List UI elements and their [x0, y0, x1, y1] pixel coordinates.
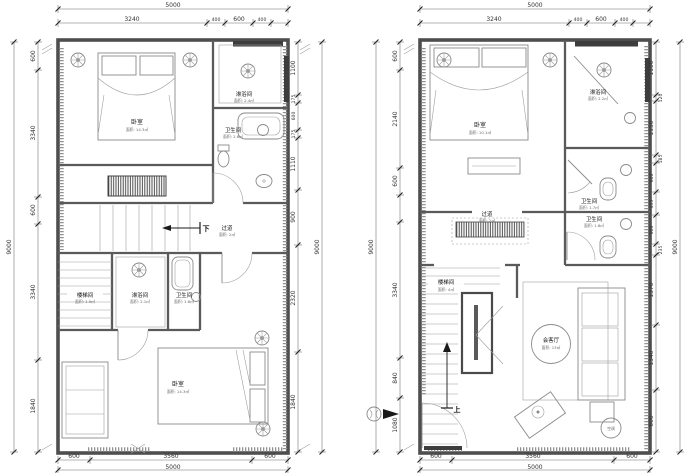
shower-head-icon [132, 263, 146, 277]
dim-label: 600 [233, 16, 245, 23]
ceiling-light-icon [183, 53, 197, 67]
room-area: 面积: 1.7㎡ [579, 205, 599, 210]
ceiling-light-icon [71, 53, 85, 67]
dim-label: 1100 [648, 60, 655, 75]
room-area: 面积: 2.4㎡ [234, 98, 254, 103]
room-label: 会客厅 [543, 336, 560, 344]
dim-label: 3340 [30, 284, 37, 299]
dim-label: 9000 [672, 239, 679, 254]
dim-label: 600 [392, 50, 399, 62]
up-label: 上 [454, 405, 461, 414]
dim-label: 9000 [6, 239, 13, 254]
dim-label: 600 [430, 453, 442, 460]
dim-label: 185 [658, 155, 664, 164]
dim-label: 175 [291, 130, 297, 139]
room-area: 面积: 14.3㎡ [167, 389, 190, 394]
dim-label: 1340 [648, 350, 655, 365]
dim-label: 600 [649, 226, 655, 235]
room-area: 面积: 14.3㎡ [126, 127, 149, 132]
room-label: 卧室 [474, 121, 486, 129]
dim-label: 3340 [30, 125, 37, 140]
dim-label: 120 [658, 94, 664, 103]
dim-label: 175 [291, 95, 297, 104]
room-area: 面积: 2.6㎡ [223, 134, 243, 139]
dim-label: 1150 [648, 120, 655, 135]
ceiling-light-icon [543, 53, 557, 67]
dim-label: 1840 [290, 394, 297, 409]
window [233, 41, 283, 47]
room-label: 淋浴间 [132, 291, 148, 299]
dim-label: 600 [626, 453, 638, 460]
window [575, 41, 638, 47]
stair-flight-hatch [108, 176, 166, 196]
room-area: 面积: 10.1㎡ [469, 130, 492, 135]
room-label: 卫生间 [581, 197, 597, 205]
ceiling-light-icon [437, 53, 451, 67]
room-label: 过道 [222, 224, 233, 232]
dim-label: 400 [574, 17, 583, 23]
dim-label: 900 [290, 211, 297, 223]
dim-label: 5000 [165, 2, 180, 9]
dim-label: 600 [30, 204, 37, 216]
dim-label: 455 [649, 200, 655, 209]
dim-label: 600 [68, 453, 80, 460]
shower-head-icon [241, 64, 255, 78]
room-label: 卫生间 [586, 215, 602, 223]
room-area: 面积: 2㎡ [479, 218, 495, 223]
dim-label: 1110 [290, 156, 297, 171]
dim-label: 600 [392, 175, 399, 187]
dim-label: 1080 [392, 417, 399, 432]
dim-label: 9000 [368, 239, 375, 254]
dim-label: 3240 [486, 16, 501, 23]
dim-label: 2140 [392, 111, 399, 126]
dim-label: 9000 [314, 239, 321, 254]
dim-label: 600 [649, 174, 655, 183]
room-area: 面积: 2㎡ [219, 232, 235, 237]
dim-label: 600 [648, 415, 655, 427]
ceiling-light-icon [256, 422, 270, 436]
dim-label: 3340 [392, 282, 399, 297]
room-label: 过道 [482, 210, 493, 218]
dim-label: 5000 [527, 464, 542, 471]
room-area: 面积: 1.6㎡ [174, 299, 194, 304]
room-area: 面积: 4㎡ [438, 287, 454, 292]
dim-label: 5000 [527, 2, 542, 9]
dim-label: 3560 [525, 453, 540, 460]
room-label: 楼梯间 [77, 291, 93, 299]
dim-label: 235 [658, 246, 664, 255]
dim-label: 1840 [30, 398, 37, 413]
dim-label: 1100 [290, 60, 297, 75]
room-area: 面积: 13㎡ [542, 345, 561, 350]
dim-label: 400 [212, 17, 221, 23]
ceiling-light-icon [255, 331, 269, 345]
dim-label: 2320 [290, 290, 297, 305]
room-area: 面积: 2.1㎡ [130, 299, 150, 304]
dim-label: 600 [30, 50, 37, 62]
room-area: 面积: 1.8㎡ [584, 223, 604, 228]
shower-head-icon [597, 63, 611, 77]
room-label: 楼梯间 [438, 278, 454, 286]
room-label: 淋浴间 [590, 88, 606, 96]
room-label: 淋浴间 [236, 90, 252, 98]
down-label: 下 [203, 225, 210, 233]
dim-label: 840 [392, 372, 399, 384]
room-label: 卧室 [172, 380, 184, 388]
closet-rod-hatch [456, 222, 524, 237]
room-area: 面积: 1.9㎡ [75, 299, 95, 304]
dim-label: 1370 [648, 282, 655, 297]
room-label: 卫生间 [176, 291, 192, 299]
room-label: 卧室 [131, 118, 143, 126]
stair-stringer [474, 305, 478, 360]
room-label: 卫生间 [225, 126, 241, 134]
window [284, 56, 289, 102]
floorplan-drawing: 卧室 面积: 14.3㎡ 淋浴间 面积: 2.4㎡ 卫生间 面积: 2.6㎡ 下… [0, 0, 694, 473]
room-area: 面积: 2.2㎡ [588, 96, 608, 101]
floorplan-sheet: 卧室 面积: 14.3㎡ 淋浴间 面积: 2.4㎡ 卫生间 面积: 2.6㎡ 下… [0, 0, 694, 473]
dim-label: 3240 [124, 16, 139, 23]
ac-label: 空调 [607, 426, 615, 431]
dim-label: 3560 [163, 453, 178, 460]
dim-label: 600 [264, 453, 276, 460]
dim-label: 5000 [165, 464, 180, 471]
dim-label: 400 [258, 17, 267, 23]
dim-label: 600 [291, 112, 297, 121]
dim-label: 400 [620, 17, 629, 23]
dim-label: 600 [595, 16, 607, 23]
